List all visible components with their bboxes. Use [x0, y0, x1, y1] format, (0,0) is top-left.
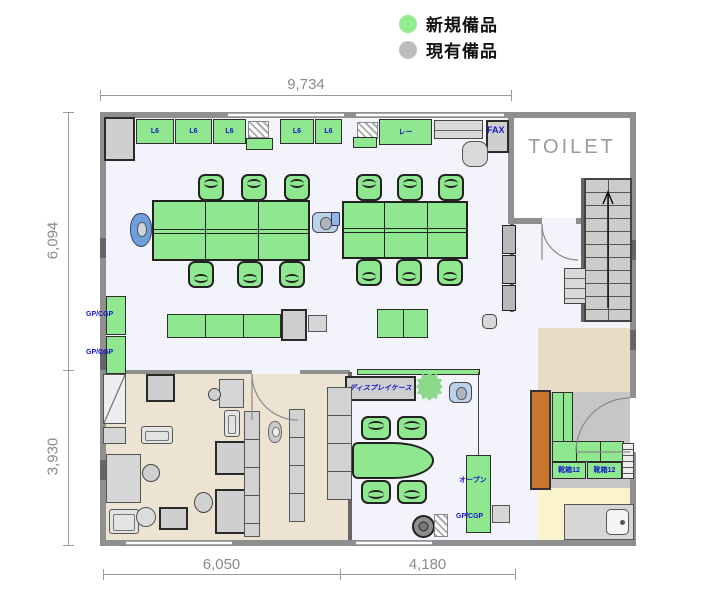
floorplan-text-label: GP/CGP — [86, 349, 113, 356]
bag — [331, 212, 340, 226]
counter-row — [552, 441, 624, 462]
round-table — [462, 141, 488, 167]
window-bottom-1 — [126, 541, 232, 545]
sink — [606, 509, 629, 535]
floor-right-tan — [538, 328, 630, 392]
chair — [241, 174, 267, 201]
sofa — [109, 509, 139, 534]
pilaster — [630, 330, 636, 350]
chair — [361, 416, 391, 440]
printer — [159, 507, 188, 530]
cart-tray — [308, 315, 327, 332]
desk-island — [152, 200, 310, 261]
floorplan-text-label: FAX — [487, 125, 505, 135]
printer — [146, 374, 175, 402]
chair — [208, 388, 221, 401]
cabinet: L6 — [213, 119, 246, 144]
plant-pot — [412, 515, 435, 538]
wall-cabinet — [502, 225, 516, 254]
shelf — [289, 409, 305, 522]
cabinet-label: L6 — [176, 120, 211, 143]
round-table — [136, 507, 156, 527]
shelf — [327, 387, 352, 500]
chair — [356, 259, 382, 286]
wall-cabinet — [502, 285, 516, 311]
cabinet-wide-label: レー — [380, 120, 431, 144]
cabinet: L6 — [136, 119, 174, 144]
counter — [167, 314, 281, 338]
partition-line — [478, 372, 479, 456]
cabinet: L6 — [280, 119, 314, 144]
chair — [361, 480, 391, 504]
chair — [438, 174, 464, 201]
chair — [397, 174, 423, 201]
floorplan-text-label: GP/CGP — [86, 311, 113, 318]
cabinet: L6 — [315, 119, 342, 144]
pilaster — [100, 238, 106, 258]
meeting-table — [352, 442, 434, 479]
chair — [279, 261, 305, 288]
chair — [284, 174, 310, 201]
sofa — [224, 410, 240, 437]
chair — [142, 464, 160, 482]
display-case: ディスプレイケース — [345, 376, 416, 401]
open-shelf — [466, 455, 491, 533]
box — [492, 505, 510, 523]
floorplan: L6L6L6L6L6レーディスプレイケース靴箱12靴箱12FAXGP/CGPGP… — [0, 0, 718, 604]
chair — [194, 492, 213, 513]
cabinet-labeled-label: 靴箱12 — [588, 463, 621, 478]
chair — [237, 261, 263, 288]
chair — [198, 174, 224, 201]
chair-occupied — [449, 382, 472, 403]
cart — [281, 309, 307, 341]
floorplan-canvas: 新規備品 現有備品 9,734 6,094 3,930 6,050 4,180 … — [0, 0, 718, 604]
window-top-1 — [228, 113, 344, 117]
cabinet-low — [103, 427, 126, 444]
cabinet-label: L6 — [281, 120, 313, 143]
chair — [188, 261, 214, 288]
sofa — [141, 426, 173, 444]
cabinet-low — [246, 138, 273, 150]
copier-counter — [434, 120, 483, 139]
chair — [396, 259, 422, 286]
tall-cabinet-orange — [530, 390, 551, 490]
floorplan-text-label: GP/CGP — [456, 513, 483, 520]
window-top-2 — [356, 113, 504, 117]
desk-island — [342, 201, 468, 259]
cabinet-col — [244, 411, 260, 537]
chair — [437, 259, 463, 286]
cabinet-labeled: 靴箱12 — [587, 462, 622, 479]
hatch-mat — [248, 121, 269, 138]
window-bottom-2 — [356, 541, 432, 545]
wall-cabinet — [502, 255, 516, 284]
mat — [434, 514, 448, 537]
cabinet-low — [353, 137, 377, 148]
stairs — [584, 178, 632, 322]
desk — [219, 379, 244, 408]
counter-col — [552, 392, 573, 442]
floorplan-text-label: オープン — [459, 475, 487, 485]
display-case-label: ディスプレイケース — [347, 378, 414, 399]
wall-office-top-a — [106, 370, 252, 374]
chair — [397, 480, 427, 504]
cabinet-gray — [104, 117, 135, 161]
wall-office-top-b — [300, 370, 350, 374]
stool — [482, 314, 497, 329]
person — [268, 421, 282, 443]
chair — [397, 416, 427, 440]
entrance-steps — [622, 443, 634, 479]
cabinet-label: L6 — [137, 120, 173, 143]
cabinet-label: L6 — [214, 120, 245, 143]
shelf-strip — [357, 369, 480, 375]
toilet-room-label: TOILET — [516, 136, 628, 159]
appliance — [564, 268, 586, 304]
desk-large — [106, 454, 141, 503]
cabinet-labeled-label: 靴箱12 — [553, 463, 585, 478]
chair — [356, 174, 382, 201]
cabinet-label: L6 — [316, 120, 341, 143]
locker-diag — [103, 374, 126, 424]
person — [130, 213, 152, 247]
cabinet: L6 — [175, 119, 212, 144]
work-table — [377, 309, 428, 338]
cabinet-wide: レー — [379, 119, 432, 145]
cabinet-labeled: 靴箱12 — [552, 462, 586, 479]
